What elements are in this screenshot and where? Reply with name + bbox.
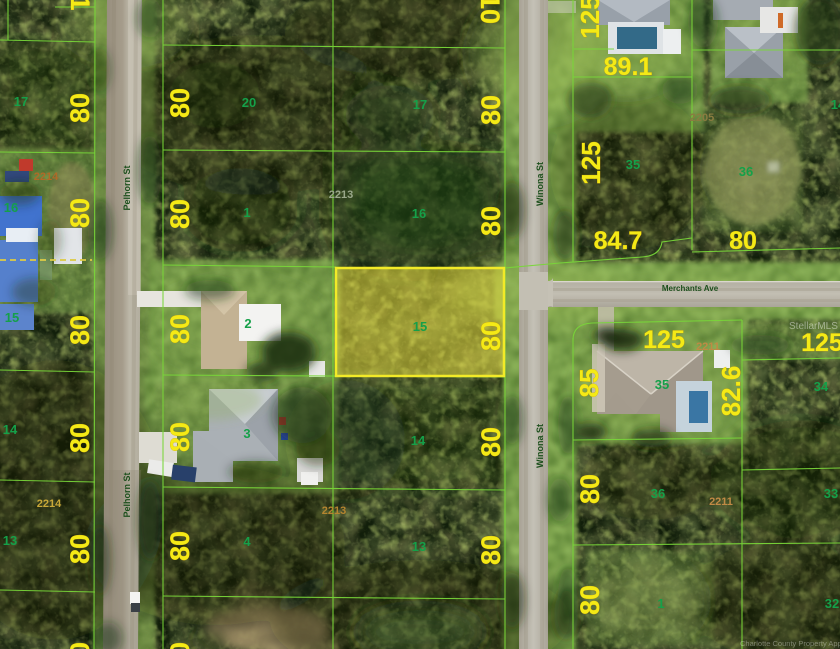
svg-text:35: 35: [626, 157, 640, 172]
svg-text:Winona St: Winona St: [535, 424, 545, 468]
svg-text:84.7: 84.7: [594, 227, 643, 255]
svg-text:2211: 2211: [696, 341, 720, 353]
svg-text:4: 4: [243, 534, 251, 549]
svg-text:20: 20: [242, 95, 256, 110]
svg-text:80: 80: [65, 423, 95, 453]
svg-text:80: 80: [729, 227, 757, 255]
svg-text:125: 125: [575, 0, 605, 39]
svg-text:Pelhorn St: Pelhorn St: [122, 472, 132, 517]
svg-text:1: 1: [65, 0, 95, 11]
svg-text:15: 15: [413, 319, 427, 334]
svg-text:32: 32: [825, 596, 839, 611]
svg-text:80: 80: [65, 315, 95, 345]
svg-text:16: 16: [412, 206, 426, 221]
svg-text:80: 80: [575, 474, 605, 504]
svg-text:125: 125: [576, 141, 606, 184]
svg-text:Merchants Ave: Merchants Ave: [662, 284, 719, 293]
svg-text:10: 10: [475, 0, 505, 24]
svg-text:35: 35: [655, 377, 669, 392]
svg-text:17: 17: [413, 97, 427, 112]
svg-text:1: 1: [243, 205, 250, 220]
svg-text:2211: 2211: [709, 496, 733, 508]
svg-text:80: 80: [476, 206, 506, 236]
svg-text:34: 34: [814, 379, 829, 394]
svg-text:14: 14: [411, 433, 426, 448]
svg-text:36: 36: [739, 164, 753, 179]
svg-text:80: 80: [65, 198, 95, 228]
svg-text:80: 80: [575, 585, 605, 615]
svg-text:1: 1: [657, 596, 664, 611]
svg-text:2214: 2214: [34, 171, 59, 183]
svg-text:80: 80: [476, 95, 506, 125]
svg-text:125: 125: [643, 326, 685, 354]
svg-text:80: 80: [65, 642, 95, 649]
svg-text:Pelhorn St: Pelhorn St: [122, 165, 132, 210]
svg-text:125: 125: [801, 329, 840, 357]
svg-text:80: 80: [476, 535, 506, 565]
svg-text:80: 80: [65, 93, 95, 123]
svg-text:80: 80: [476, 321, 506, 351]
svg-text:80: 80: [476, 427, 506, 457]
svg-text:14: 14: [3, 422, 18, 437]
svg-text:80: 80: [65, 534, 95, 564]
svg-text:3: 3: [243, 426, 250, 441]
svg-text:StellarMLS: StellarMLS: [789, 321, 838, 332]
svg-text:2213: 2213: [329, 189, 353, 201]
svg-text:17: 17: [14, 94, 28, 109]
svg-text:89.1: 89.1: [604, 53, 653, 81]
svg-text:2213: 2213: [322, 505, 346, 517]
svg-text:36: 36: [651, 486, 665, 501]
svg-text:Charlotte County Property Appr: Charlotte County Property Appraiser: [740, 639, 840, 648]
svg-text:16: 16: [4, 200, 18, 215]
svg-text:80: 80: [165, 642, 195, 649]
svg-text:80: 80: [165, 88, 195, 118]
svg-text:14: 14: [831, 97, 840, 112]
svg-text:13: 13: [412, 539, 426, 554]
svg-text:2205: 2205: [690, 112, 714, 124]
svg-text:2214: 2214: [37, 498, 62, 510]
svg-text:15: 15: [5, 310, 19, 325]
svg-text:33: 33: [824, 486, 838, 501]
svg-text:2: 2: [244, 316, 251, 331]
svg-text:80: 80: [165, 422, 195, 452]
svg-text:80: 80: [165, 314, 195, 344]
svg-text:13: 13: [3, 533, 17, 548]
svg-text:82.6: 82.6: [716, 366, 746, 417]
svg-text:85: 85: [574, 369, 604, 398]
svg-text:Winona St: Winona St: [535, 162, 545, 206]
svg-text:80: 80: [165, 531, 195, 561]
svg-text:80: 80: [165, 199, 195, 229]
